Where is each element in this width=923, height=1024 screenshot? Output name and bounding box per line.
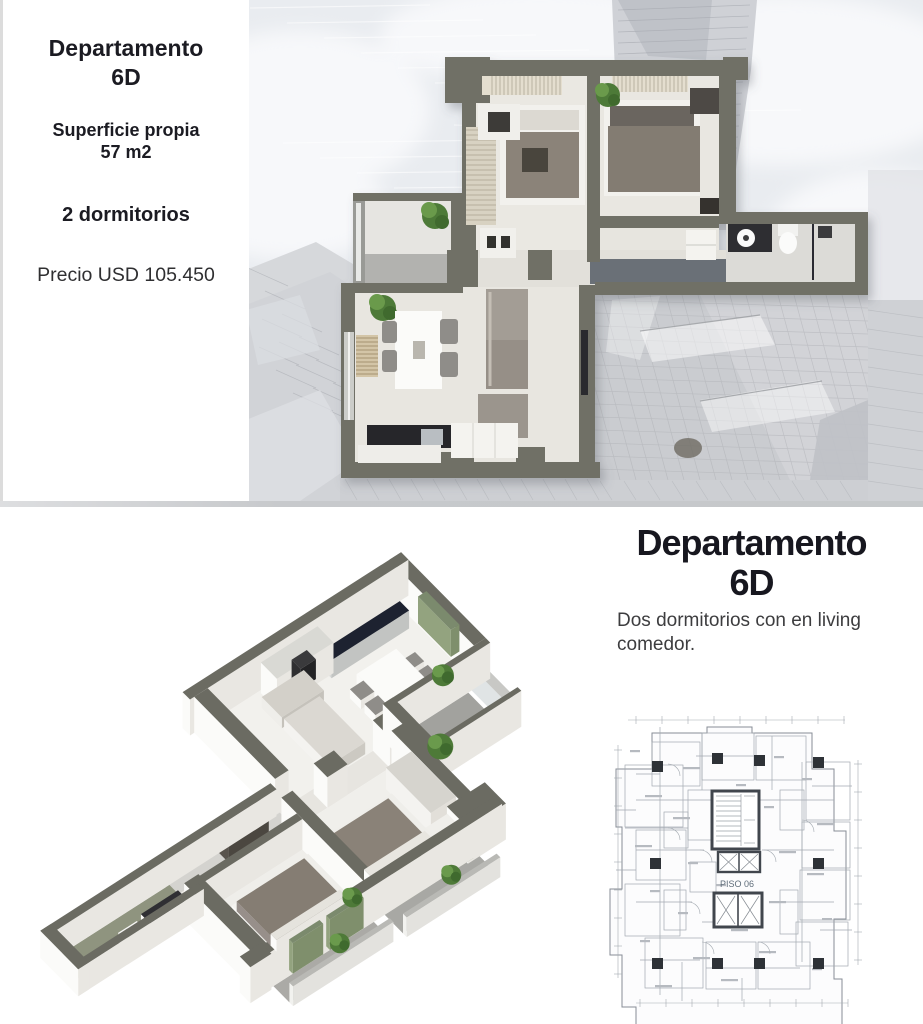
svg-text:PISO 06: PISO 06 bbox=[720, 879, 754, 889]
